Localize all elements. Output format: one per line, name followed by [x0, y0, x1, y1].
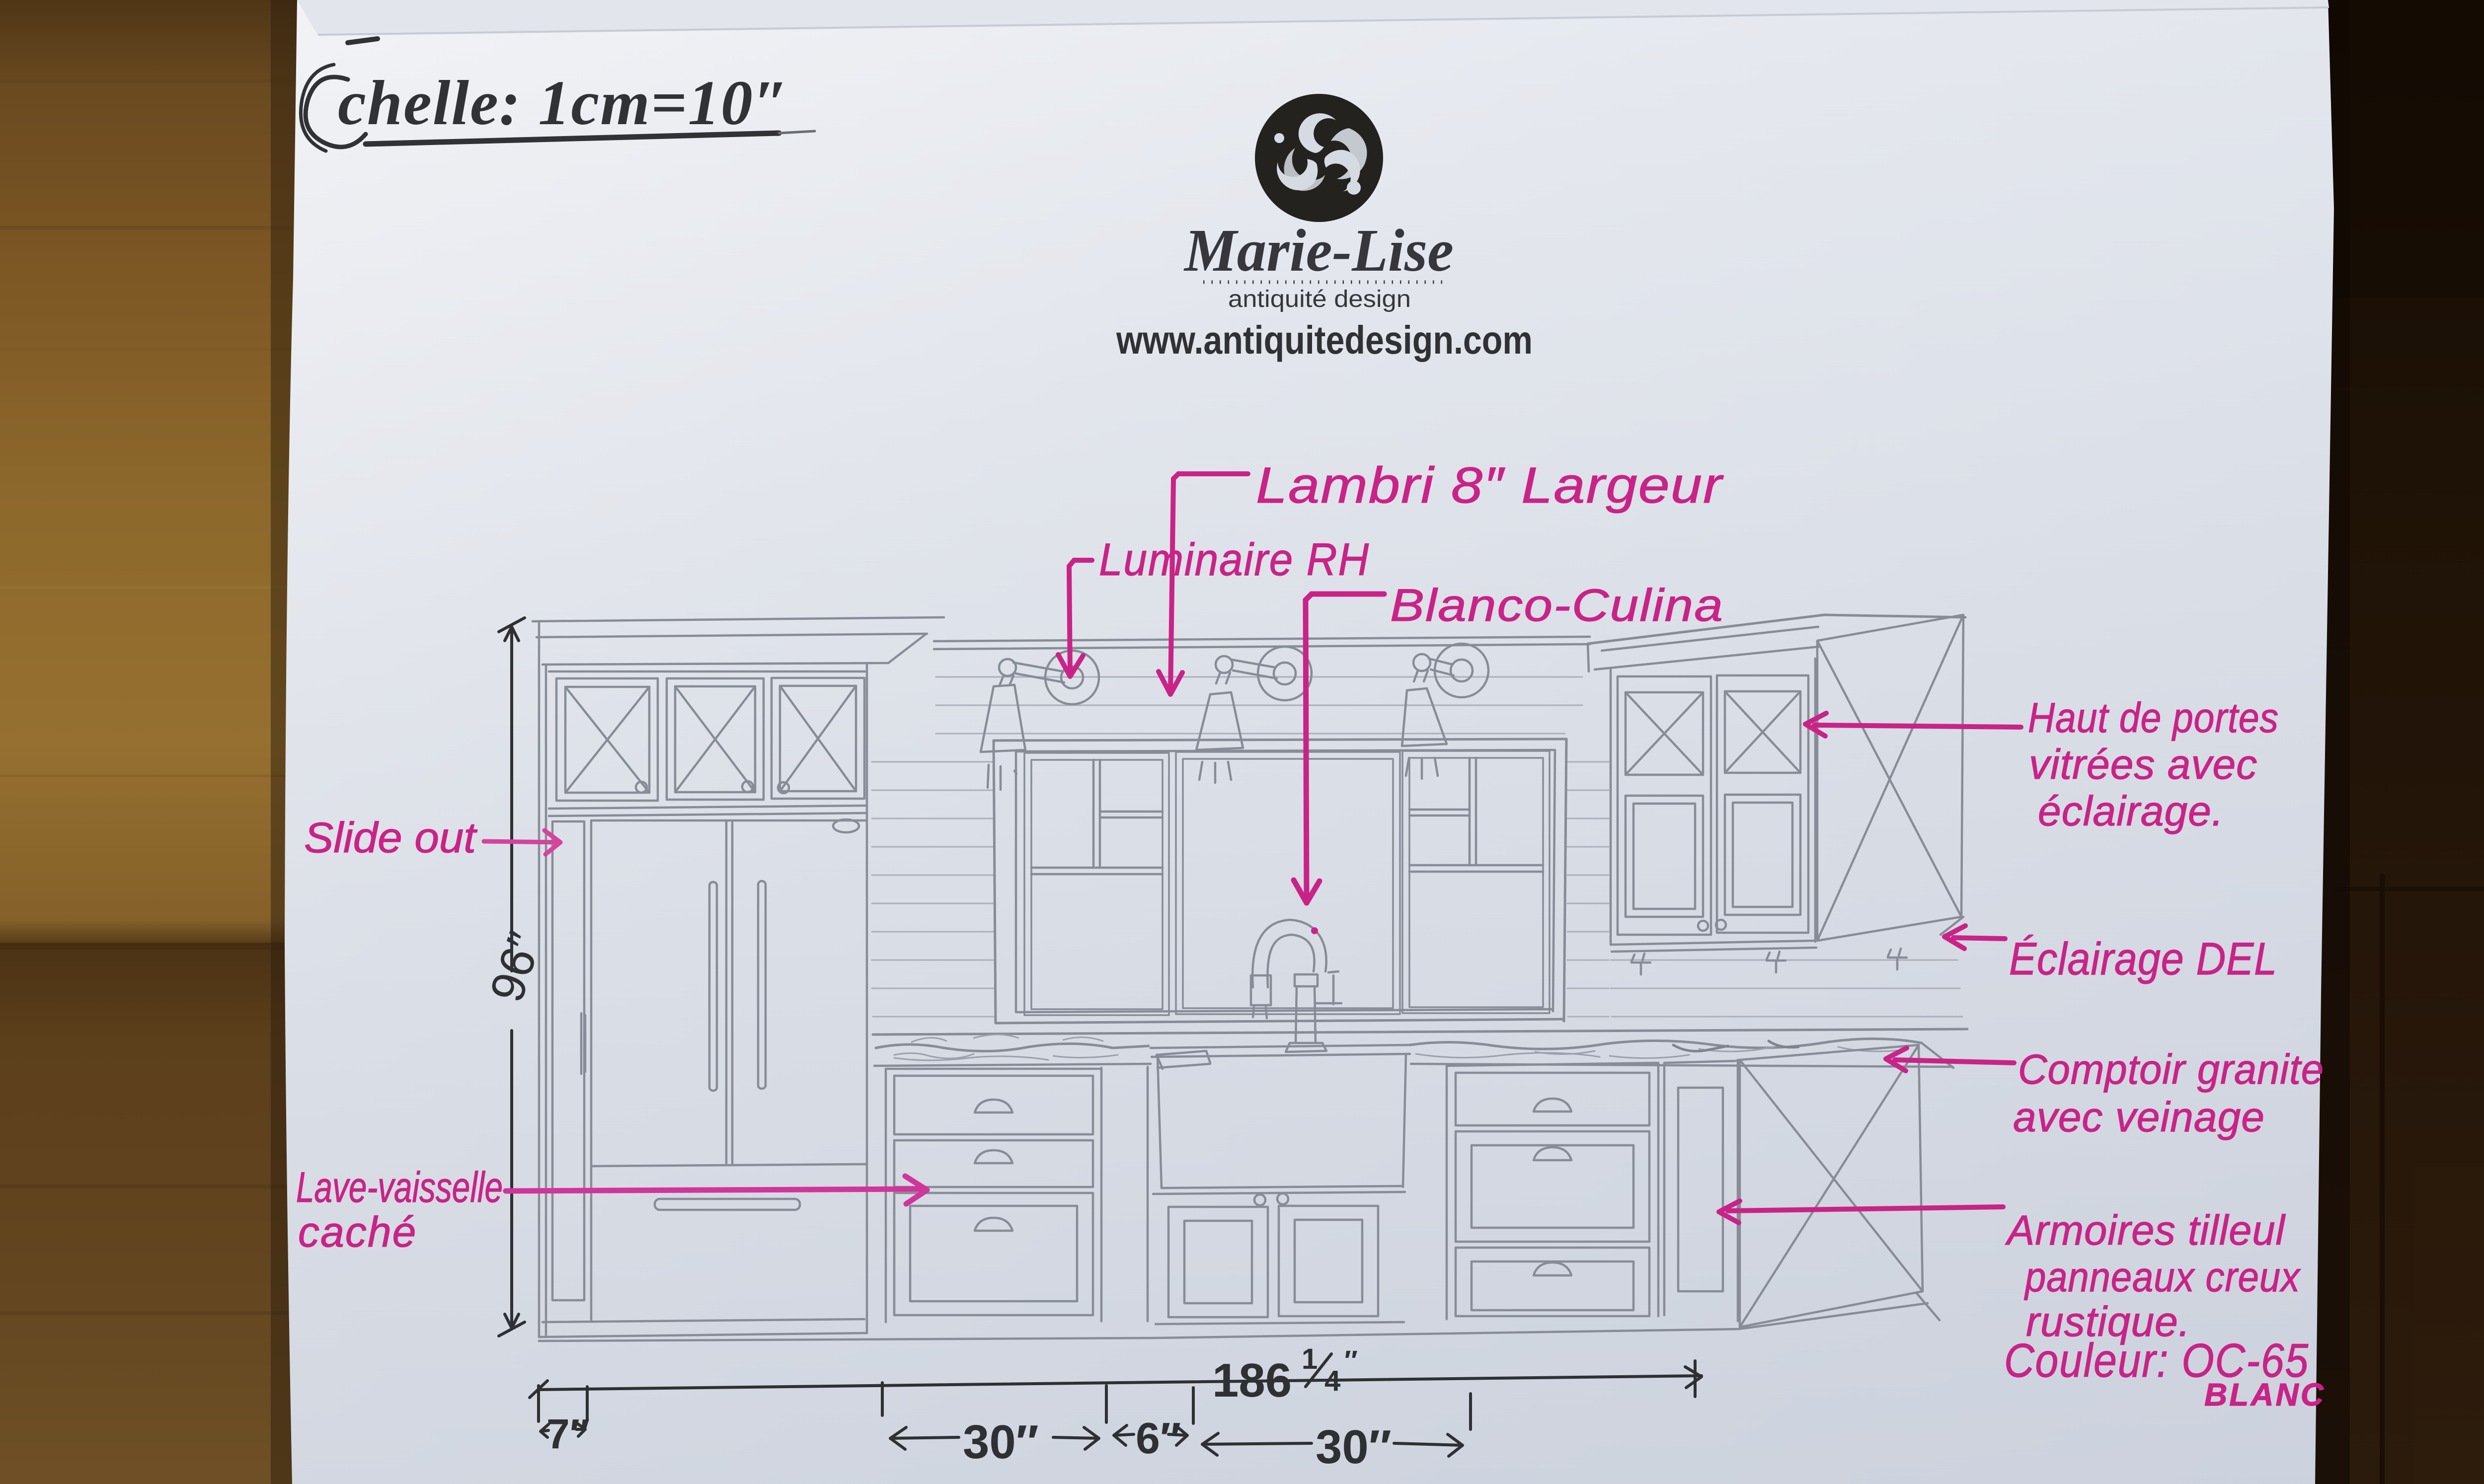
svg-text:Marie-Lise: Marie-Lise [1183, 217, 1454, 284]
svg-text:antiquité design: antiquité design [1228, 286, 1411, 312]
svg-text:4: 4 [1324, 1365, 1340, 1397]
svg-text:BLANC: BLANC [2204, 1377, 2326, 1412]
svg-text:caché: caché [298, 1208, 417, 1256]
svg-text:Luminaire RH: Luminaire RH [1099, 534, 1370, 585]
svg-text:7″: 7″ [546, 1410, 590, 1457]
svg-text:Lambri 8″ Largeur: Lambri 8″ Largeur [1256, 457, 1724, 514]
svg-text:Blanco-Culina: Blanco-Culina [1390, 580, 1724, 631]
svg-text:Haut de portes: Haut de portes [2028, 694, 2279, 741]
svg-text:Comptoir granite: Comptoir granite [2018, 1046, 2324, 1093]
svg-text:6″: 6″ [1136, 1413, 1181, 1463]
svg-text:panneaux creux: panneaux creux [2023, 1254, 2301, 1300]
svg-text:chelle: 1cm=10″: chelle: 1cm=10″ [338, 68, 789, 138]
svg-text:Éclairage DEL: Éclairage DEL [2009, 934, 2277, 984]
svg-text:avec veinage: avec veinage [2013, 1094, 2265, 1140]
svg-text:Lave-vaisselle: Lave-vaisselle [296, 1164, 503, 1211]
svg-text:éclairage.: éclairage. [2038, 788, 2224, 834]
svg-text:vitrées avec: vitrées avec [2029, 741, 2257, 788]
svg-text:Armoires tilleul: Armoires tilleul [2005, 1207, 2286, 1254]
svg-text:186: 186 [1212, 1354, 1292, 1407]
svg-text:Slide out: Slide out [304, 814, 477, 862]
svg-text:30″: 30″ [1316, 1420, 1392, 1474]
svg-text:www.antiquitedesign.com: www.antiquitedesign.com [1116, 318, 1533, 362]
svg-text:1: 1 [1302, 1343, 1318, 1375]
svg-text:″: ″ [1344, 1344, 1358, 1376]
svg-text:30″: 30″ [963, 1415, 1039, 1469]
